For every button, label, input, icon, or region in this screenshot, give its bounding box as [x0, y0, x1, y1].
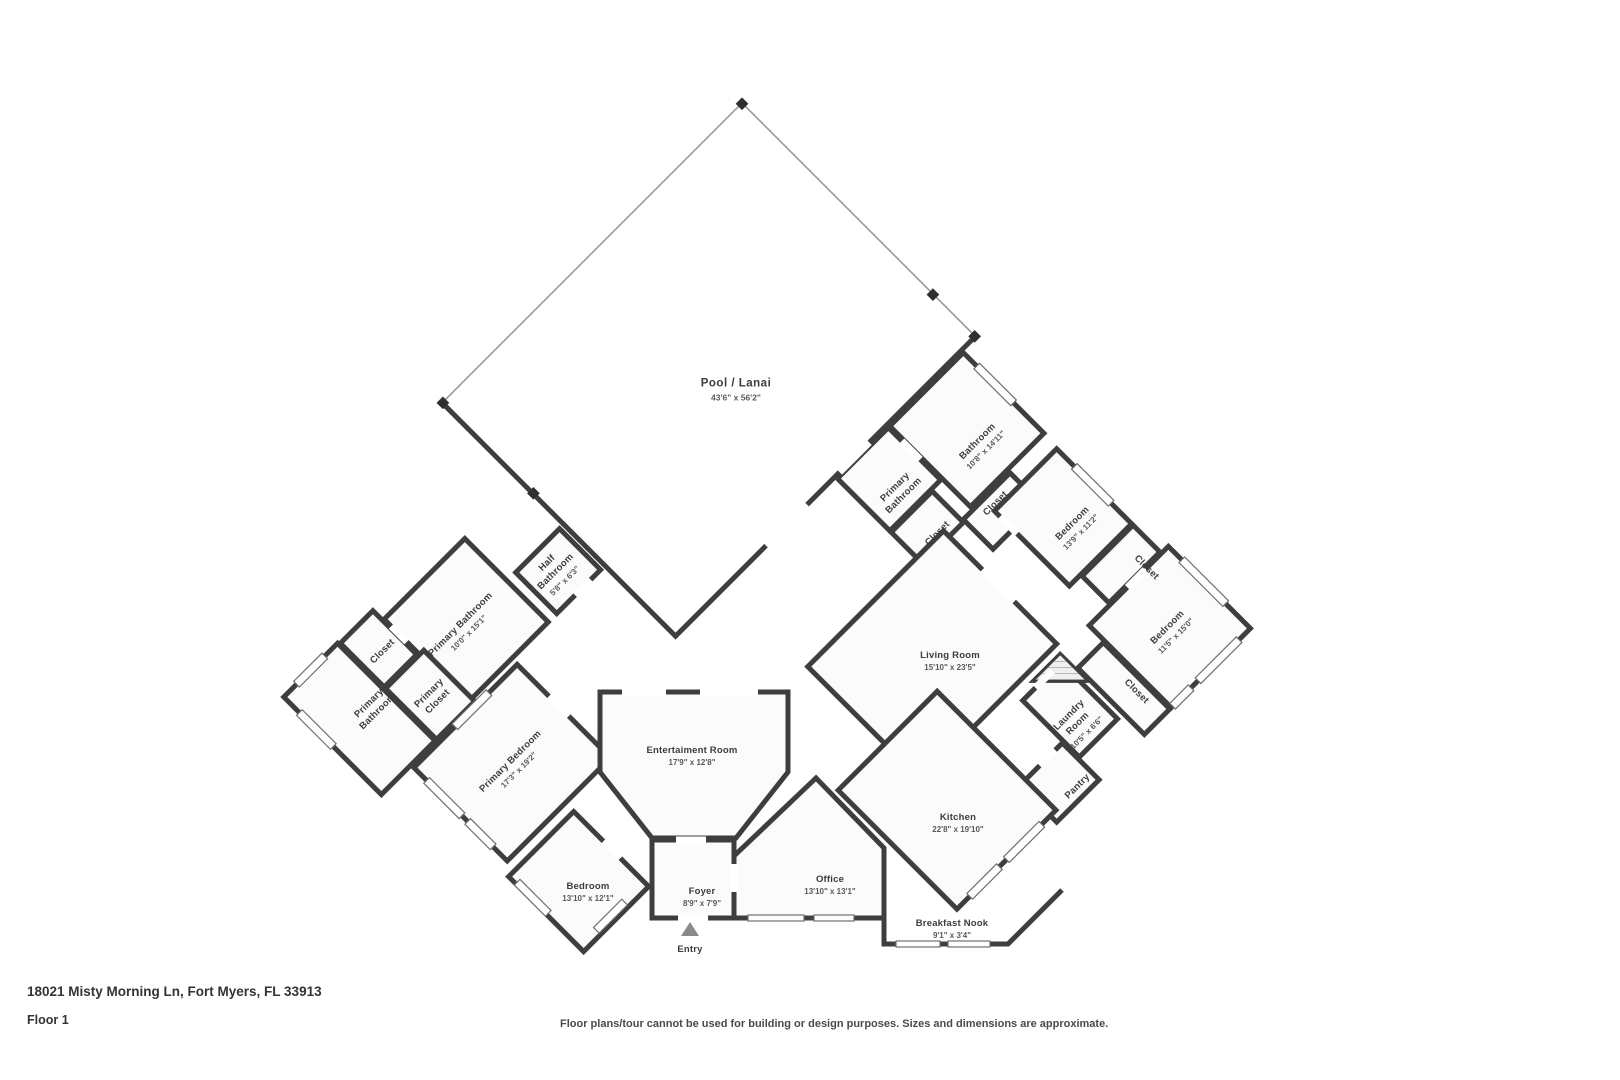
- rotated-wing: [210, 97, 1264, 1080]
- pool-house-wall: [442, 103, 975, 636]
- entry-marker: [681, 922, 699, 936]
- address-text: 18021 Misty Morning Ln, Fort Myers, FL 3…: [27, 984, 322, 999]
- pool-lanai-area: [442, 103, 975, 636]
- floor-plan-page: Pool / Lanai43'6" x 56'2"Bathroom10'8" x…: [0, 0, 1620, 1080]
- floor-label: Floor 1: [27, 1013, 69, 1027]
- disclaimer-text: Floor plans/tour cannot be used for buil…: [560, 1018, 1108, 1030]
- room-shape-foyer: [652, 840, 734, 918]
- floor-plan-drawing: [0, 0, 1620, 1080]
- room-shape-entertainment-room: [600, 692, 788, 838]
